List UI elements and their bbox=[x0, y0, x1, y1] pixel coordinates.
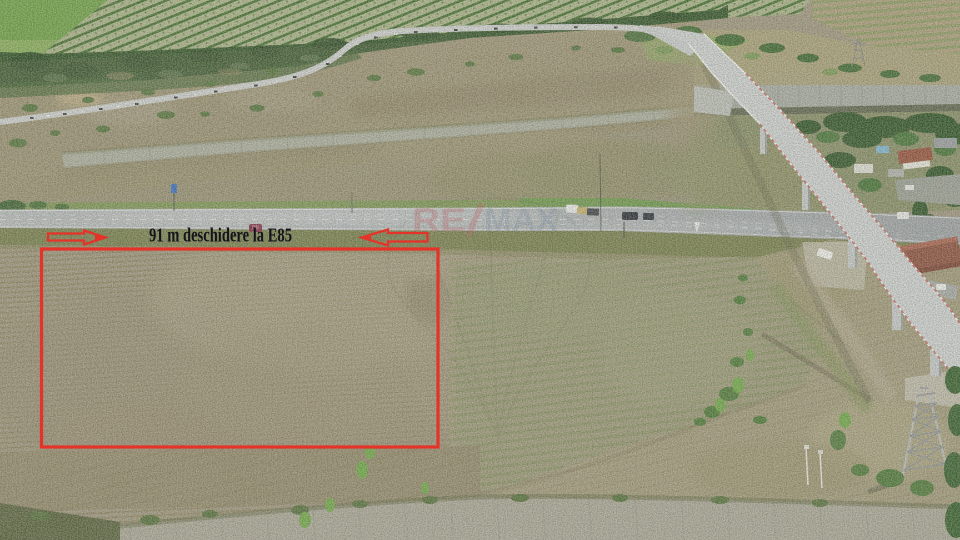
svg-text:91 m deschidere la E85: 91 m deschidere la E85 bbox=[149, 225, 292, 247]
